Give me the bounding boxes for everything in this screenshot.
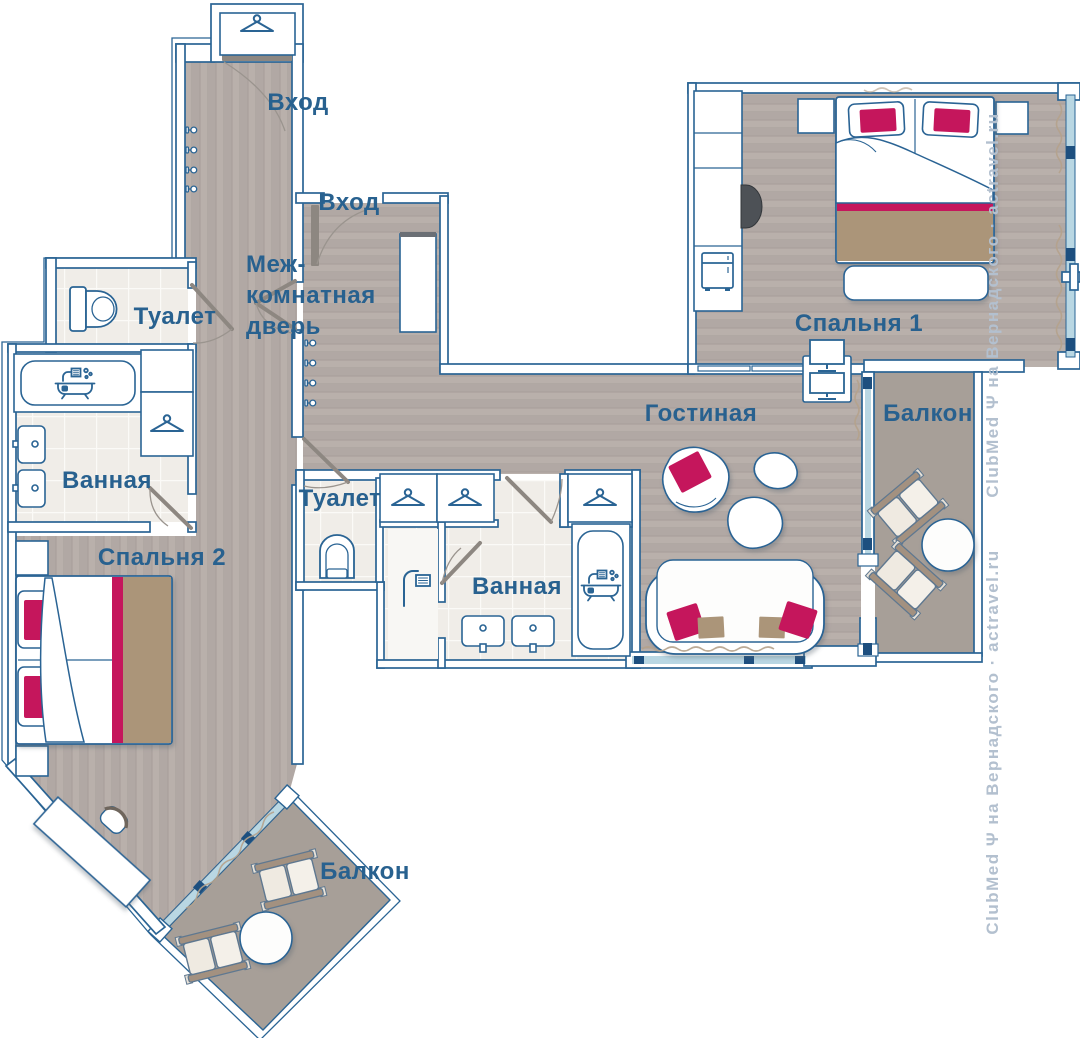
label-toilet-center: Туалет [299,485,382,512]
shelf-closet [141,350,193,392]
label-toilet-left: Туалет [134,303,217,330]
sliding-door-panel [698,366,750,371]
bed-double-bedroom2 [16,576,172,744]
label-interroom-1: Меж- [246,251,306,278]
floor-plan-svg: Вход Вход Меж- комнатная дверь Туалет Ва… [0,0,1080,1038]
watermark: ClubMed Ψ на Вернадского · actravel.ru C… [983,112,1002,934]
label-entrance-top: Вход [267,89,328,116]
round-table [240,912,292,964]
bed-bench [844,266,988,300]
armchair [663,447,729,512]
wardrobe-closet [568,474,632,522]
pillow [848,102,905,138]
label-entrance-mid: Вход [318,189,379,216]
label-bathroom-center: Ванная [472,573,562,600]
bed-blanket [837,211,993,261]
label-living-room: Гостиная [645,400,757,427]
bed-blanket [123,577,171,743]
wardrobe-closet [141,392,193,456]
wardrobe-closet [437,474,494,522]
label-balcony-right: Балкон [883,400,973,427]
label-bathroom-left: Ванная [62,467,152,494]
nightstand [16,541,48,575]
toilet-icon [320,535,354,578]
window-living-bottom [632,656,806,664]
mirror-top [400,232,436,237]
bed-double-bedroom1 [836,97,994,263]
wardrobe-closet [380,474,437,522]
closet-entrance [220,13,295,55]
sofa [646,560,824,654]
desk-workstation [803,340,851,402]
floor-plan: Вход Вход Меж- комнатная дверь Туалет Ва… [0,0,1080,1038]
label-balcony-bottom: Балкон [320,858,410,885]
sink-icon [13,426,45,463]
pillow [922,102,979,138]
watermark-text: ClubMed Ψ на Вернадского · actravel.ru [983,112,1002,497]
sink-icon [462,616,504,652]
monitor-icon [810,373,844,393]
sink-icon [13,470,45,507]
label-bedroom-2: Спальня 2 [98,544,226,571]
label-interroom-2: комнатная [246,282,376,309]
sliding-door-panel [752,366,804,371]
fridge-icon [702,253,733,291]
watermark-text: ClubMed Ψ на Вернадского · actravel.ru [983,549,1002,934]
sink-icon [512,616,554,652]
mirror-panel [400,234,436,332]
window-bedroom1 [1066,95,1075,357]
bed-runner [112,577,123,743]
coffee-table [728,497,783,548]
label-interroom-3: дверь [246,313,321,340]
nightstand [16,746,48,776]
exterior-notch [303,590,377,660]
nightstand [798,99,834,133]
label-bedroom-1: Спальня 1 [795,310,923,337]
monitor-icon [810,340,844,364]
pillow [697,616,724,638]
shower-cabin [388,529,438,659]
round-table [922,519,974,571]
